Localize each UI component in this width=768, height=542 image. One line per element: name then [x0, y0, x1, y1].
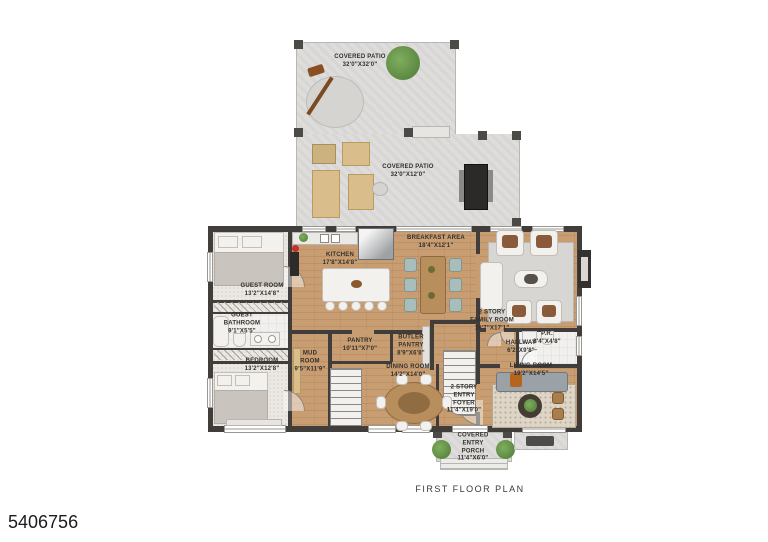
outdoor-chair: [342, 142, 370, 166]
fireplace-opening: [581, 257, 588, 281]
pillow: [218, 236, 238, 248]
stool: [338, 301, 348, 311]
closet-hangers: [214, 302, 288, 312]
pillow: [217, 375, 232, 386]
room-label-foyer: 2 STORY ENTRY FOYER11'4"x19'0": [444, 384, 484, 415]
pillow: [235, 375, 250, 386]
room-label-bedroom: BEDROOM13'2"x12'8": [237, 358, 287, 374]
window-seat: [226, 419, 282, 426]
patio-post: [404, 128, 413, 137]
window: [207, 252, 213, 282]
outdoor-side-table: [372, 182, 388, 196]
patio-post: [294, 128, 303, 137]
plant-icon: [299, 233, 308, 242]
patio-post: [512, 131, 521, 140]
grill-shelf: [488, 170, 493, 202]
sink: [331, 234, 340, 243]
sofa: [480, 262, 503, 310]
chair: [404, 278, 417, 292]
floor-plan-canvas: COVERED PATIO32'0"x32'0" COVERED PATIO32…: [0, 0, 768, 542]
door-mat: [526, 436, 554, 446]
room-label-guest-bath: GUEST BATHROOM9'1"x5'5": [221, 312, 263, 335]
patio-post: [294, 40, 303, 49]
plant-icon: [524, 399, 537, 412]
room-label-mud-room: MUD ROOM9'5"x11'9": [293, 350, 327, 373]
chair: [449, 258, 462, 272]
island-bowl: [351, 280, 362, 288]
outdoor-table: [312, 144, 336, 164]
room-label-living: LIVING ROOM19'2"x14'5": [504, 363, 558, 379]
stool: [364, 301, 374, 311]
coffee-table-tray: [524, 274, 538, 284]
stool: [552, 408, 564, 420]
wall: [292, 330, 332, 334]
room-label-patio-upper: COVERED PATIO32'0"x32'0": [325, 54, 395, 70]
stool: [552, 392, 564, 404]
room-label-kitchen: KITCHEN17'8"x14'8": [315, 252, 365, 268]
chair: [449, 298, 462, 312]
sink: [254, 335, 262, 343]
grill: [464, 164, 488, 210]
bed-blanket: [214, 252, 284, 286]
room-label-guest-room: GUEST ROOM13'2"x14'8": [237, 283, 287, 299]
room-label-butler: BUTLER PANTRY8'9"x6'8": [392, 334, 430, 357]
room-label-dining: DINING ROOM14'2"x14'0": [383, 364, 433, 380]
chair: [376, 396, 386, 409]
chair: [396, 421, 408, 431]
room-label-pr: P.R.8'4"x4'8": [532, 331, 562, 347]
patio-step: [412, 126, 450, 138]
grill-shelf: [459, 170, 464, 202]
armchair-cushion: [536, 235, 552, 248]
outdoor-sofa: [312, 170, 340, 218]
window: [576, 296, 582, 326]
armchair-cushion: [502, 235, 518, 248]
room-label-family: 2 STORY FAMILY ROOM19'7"x17'1": [469, 309, 515, 332]
room-label-patio-lower: COVERED PATIO32'0"x12'0": [373, 164, 443, 180]
sink: [320, 234, 329, 243]
sink: [268, 335, 276, 343]
bush-icon: [432, 440, 451, 459]
wall: [430, 320, 434, 370]
doorway: [352, 330, 374, 334]
bush-icon: [496, 440, 515, 459]
room-label-breakfast: BREAKFAST AREA18'4"x12'1": [405, 235, 467, 251]
patio-post: [478, 131, 487, 140]
dining-table-runner: [398, 392, 430, 414]
patio-post: [450, 40, 459, 49]
stool: [377, 301, 387, 311]
stool: [351, 301, 361, 311]
centerpiece: [428, 292, 435, 299]
room-label-pantry: PANTRY10'11"x7'0": [337, 338, 383, 354]
chair: [420, 421, 432, 431]
armchair-cushion: [542, 305, 556, 317]
stool: [325, 301, 335, 311]
chair: [404, 298, 417, 312]
chair: [449, 278, 462, 292]
range: [290, 252, 299, 276]
room-label-porch: COVERED ENTRY PORCH11'4"x6'0": [451, 432, 495, 463]
window: [368, 425, 396, 433]
range-accent: [292, 245, 299, 252]
photo-id: 5406756: [8, 512, 78, 533]
plan-title: FIRST FLOOR PLAN: [415, 484, 524, 494]
bay-window: [224, 425, 286, 433]
centerpiece: [428, 266, 435, 273]
sliding-door: [396, 226, 472, 232]
breakfast-table: [420, 256, 446, 314]
outdoor-chaise: [348, 174, 374, 210]
window: [576, 336, 582, 356]
chair: [404, 258, 417, 272]
pillow: [242, 236, 262, 248]
window: [207, 378, 213, 408]
staircase: [330, 368, 362, 426]
